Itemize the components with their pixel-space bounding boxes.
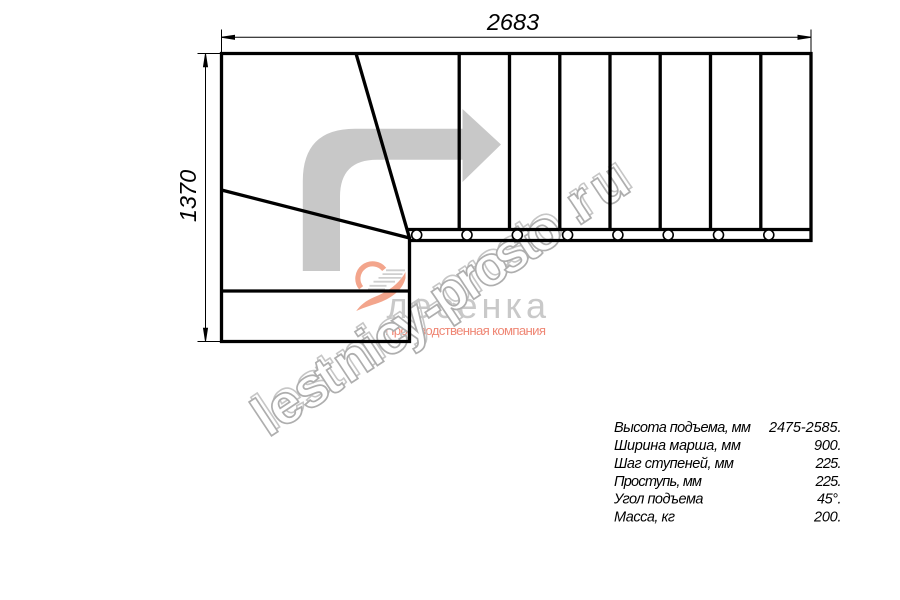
- svg-text:Шаг ступеней, мм: Шаг ступеней, мм: [614, 456, 734, 472]
- svg-text:225.: 225.: [815, 456, 842, 472]
- svg-text:2683: 2683: [486, 9, 539, 35]
- svg-text:Высота подъема, мм: Высота подъема, мм: [614, 420, 751, 436]
- svg-text:Проступь, мм: Проступь, мм: [614, 474, 702, 490]
- svg-text:2475-2585.: 2475-2585.: [768, 420, 842, 436]
- svg-text:200.: 200.: [813, 510, 842, 526]
- svg-text:Угол подъема: Угол подъема: [613, 492, 704, 508]
- svg-text:900.: 900.: [814, 438, 842, 454]
- svg-text:Масса, кг: Масса, кг: [614, 510, 675, 526]
- svg-text:1370: 1370: [175, 170, 201, 222]
- svg-text:45°.: 45°.: [817, 492, 842, 508]
- svg-text:Ширина марша, мм: Ширина марша, мм: [614, 438, 741, 454]
- svg-text:225.: 225.: [815, 474, 842, 490]
